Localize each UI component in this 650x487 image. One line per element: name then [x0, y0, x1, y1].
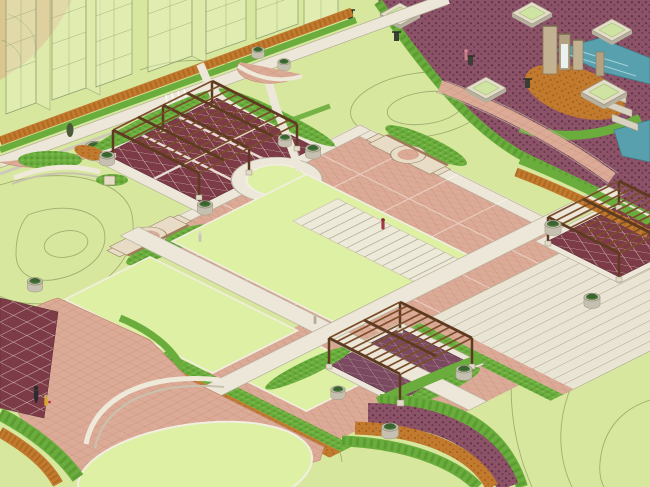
small-tree-figure: [67, 123, 74, 137]
cylindrical-planter: [197, 201, 212, 216]
cylindrical-planter: [305, 145, 320, 160]
red-figure-on-stairs: [381, 218, 385, 229]
landscape-render: [0, 0, 650, 487]
cylindrical-planter: [27, 278, 42, 293]
cylindrical-planter: [584, 293, 600, 308]
render-viewport: [0, 0, 650, 487]
cylindrical-planter: [545, 220, 561, 235]
cylindrical-planter: [456, 365, 472, 380]
tower-3: [96, 0, 132, 87]
cylindrical-planter: [382, 423, 399, 439]
waterfall: [561, 44, 568, 68]
path-walker-north: [464, 49, 468, 60]
cylindrical-planter: [278, 134, 292, 147]
cylindrical-planter: [252, 47, 265, 59]
plaza-walker-west: [198, 231, 201, 242]
cylindrical-planter: [331, 386, 345, 400]
pedestal: [104, 176, 115, 185]
tower-1: [6, 0, 50, 114]
cylindrical-planter: [99, 152, 114, 167]
cylindrical-planter: [278, 59, 291, 71]
plaza-walker-center: [313, 313, 316, 324]
tower-2: [52, 0, 100, 100]
